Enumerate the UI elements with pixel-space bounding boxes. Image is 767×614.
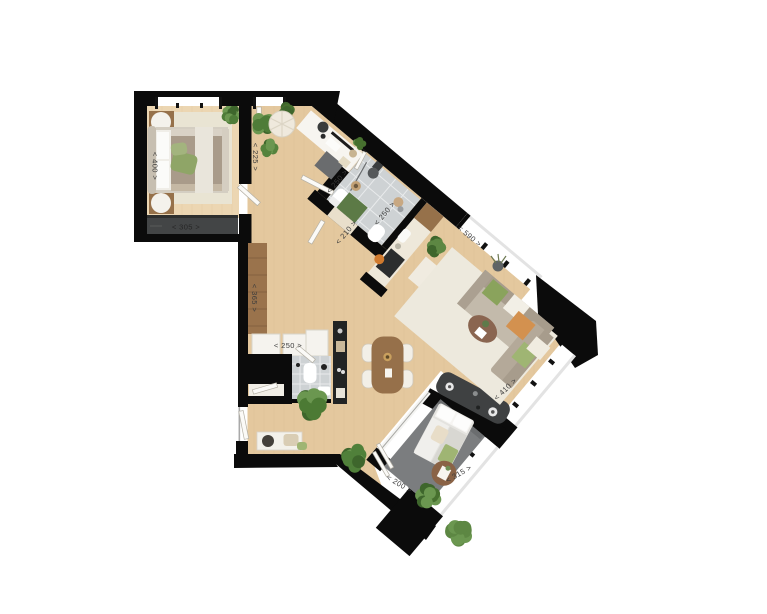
svg-text:< 400 >: < 400 > (151, 152, 160, 180)
svg-text:< 250 >: < 250 > (274, 341, 302, 350)
svg-text:< 365 >: < 365 > (250, 284, 259, 312)
svg-text:< 225 >: < 225 > (251, 143, 260, 171)
svg-text:< 305 >: < 305 > (172, 223, 200, 232)
